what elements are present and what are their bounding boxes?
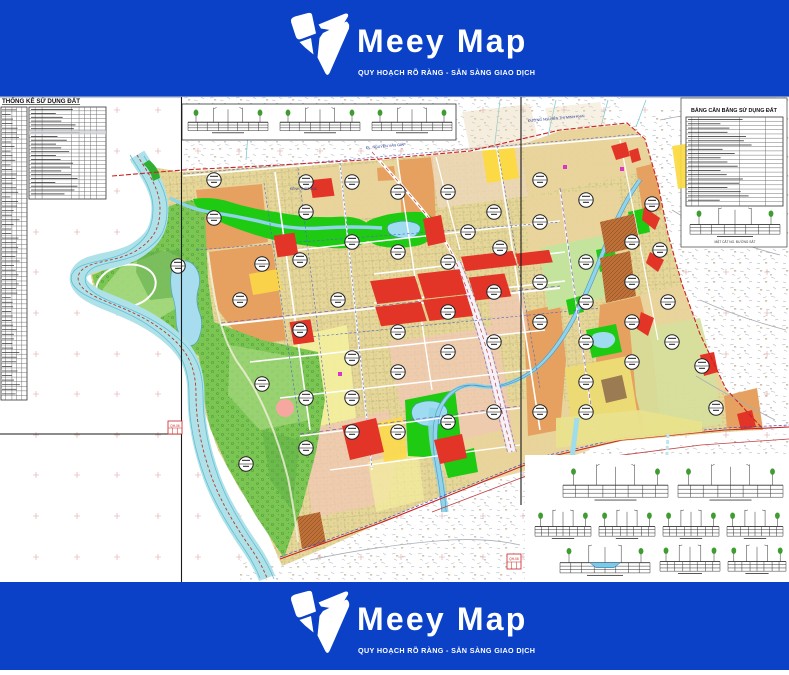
svg-text:THỐNG KÊ SỬ DỤNG ĐẤT: THỐNG KÊ SỬ DỤNG ĐẤT <box>2 97 80 105</box>
svg-text:KÊNH THẬT DỤC: KÊNH THẬT DỤC <box>290 186 318 191</box>
svg-text:QH-06: QH-06 <box>170 424 180 428</box>
svg-text:BẢNG CÂN BẰNG SỬ DỤNG ĐẤT: BẢNG CÂN BẰNG SỬ DỤNG ĐẤT <box>691 106 778 114</box>
svg-text:QUY HOẠCH RÕ RÀNG - SẴN SÀNG G: QUY HOẠCH RÕ RÀNG - SẴN SÀNG GIAO DỊCH <box>358 68 535 77</box>
svg-text:Meey Map: Meey Map <box>357 601 528 637</box>
svg-text:MẶT CẮT NG. ĐƯỜNG SẮT: MẶT CẮT NG. ĐƯỜNG SẮT <box>715 239 756 244</box>
svg-text:Meey Map: Meey Map <box>357 23 528 59</box>
svg-text:QUY HOẠCH RÕ RÀNG - SẴN SÀNG G: QUY HOẠCH RÕ RÀNG - SẴN SÀNG GIAO DỊCH <box>358 646 535 655</box>
svg-text:QH-06: QH-06 <box>509 557 519 561</box>
